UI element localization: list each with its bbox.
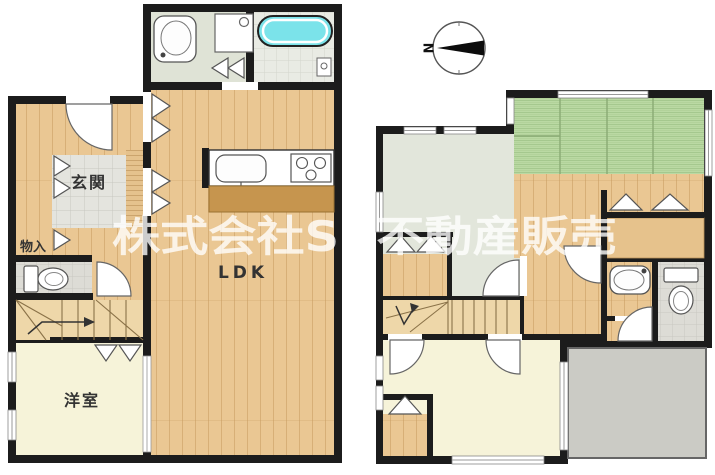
washbasin-1f (154, 16, 196, 62)
window-western-room-left-2 (8, 410, 16, 440)
window-2f-south-to-balcony (560, 362, 568, 450)
washer-pan (215, 14, 253, 52)
western-room-label: 洋室 (64, 391, 100, 410)
bathtub (258, 16, 332, 46)
window-tatami-top (558, 91, 648, 98)
bath-faucet-icon (317, 58, 331, 76)
doorway-gap-hall-ldk-1 (143, 92, 151, 142)
window-2f-south-bottom (452, 456, 544, 464)
doorway-gap-washroom-ldk (222, 82, 258, 90)
compass-north-label: N (423, 43, 438, 54)
window-tatami-right (705, 110, 712, 176)
balcony-floor (568, 348, 706, 458)
window-2f-south-left-2 (376, 386, 383, 410)
doorway-gap-hall-ldk-2 (143, 168, 151, 216)
kitchen-counter (202, 148, 334, 212)
floorplan-canvas: 玄関 物入 LDK 洋室 (0, 0, 715, 475)
kitchen-stove (291, 154, 331, 182)
window-tatami-left (507, 98, 514, 124)
wall-balcony-top (560, 341, 712, 348)
wall-above-stairs-1f (16, 293, 93, 300)
ldk-label: LDK (218, 263, 268, 283)
toilet-1f (24, 266, 68, 292)
kitchen-sink (216, 155, 266, 182)
entrance-doorway-gap (66, 96, 110, 104)
staircase-1f-floor (16, 300, 143, 340)
compass: N (423, 21, 486, 75)
entrance-label: 玄関 (71, 173, 107, 192)
floorplan-page: 玄関 物入 LDK 洋室 (0, 0, 715, 475)
floor2-plan (376, 90, 712, 464)
window-2f-northwest-top-2 (444, 127, 476, 134)
window-western-room-left-1 (8, 352, 16, 382)
kitchen-bar-counter (209, 186, 334, 212)
watermark: 株式会社SR不動産販売 (112, 212, 617, 261)
wall-above-toilet-1f (16, 255, 92, 262)
window-2f-south-left-1 (376, 356, 383, 380)
sliding-door-western-ldk (143, 356, 151, 452)
window-2f-northwest-top-1 (404, 127, 436, 134)
storage-label: 物入 (20, 239, 46, 255)
doorway-gap-2f-northwest (520, 256, 527, 296)
washbasin-2f (610, 266, 650, 294)
wall-below-stairs-1f (50, 337, 151, 343)
